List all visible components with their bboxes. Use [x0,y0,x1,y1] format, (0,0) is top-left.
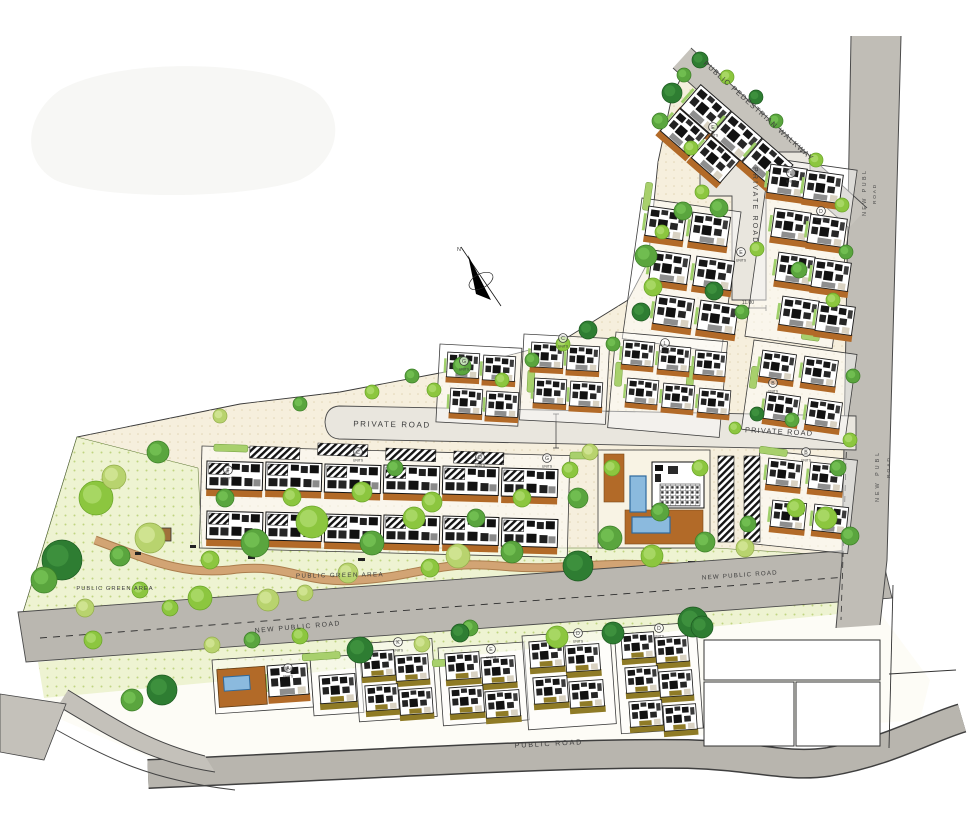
unit-marker-caption: UNITS [223,477,234,481]
tree-icon [582,444,598,460]
tree-icon [787,499,805,517]
tree-icon [188,586,212,610]
pool-building [217,666,268,707]
villa-block [482,391,520,423]
tree-icon [162,600,178,616]
tree-icon [655,225,669,239]
villa-block [444,652,482,687]
tree-icon [846,369,860,383]
villa-block [658,383,696,416]
tree-icon [84,631,102,649]
tree-icon [216,489,234,507]
villa-block [206,461,263,497]
tree-icon [652,113,668,129]
dimension-label: 11.00 [742,300,754,306]
unit-marker-caption: UNITS [542,465,553,469]
villa-block [628,700,665,733]
hedge [214,444,248,452]
unit-marker-letter: K [396,640,400,646]
tree-icon [403,507,425,529]
unit-marker-letter: D [576,631,580,637]
tree-icon [297,585,313,601]
tree-icon [513,489,531,507]
unit-marker-caption: UNITS [801,459,812,463]
tree-icon [695,185,709,199]
tree-icon [841,527,859,545]
villa-block [442,466,499,502]
tree-icon [387,460,403,476]
tree-icon [674,202,692,220]
tree-icon [360,531,384,555]
tree-icon [562,462,578,478]
unit-marker-letter: A [286,666,290,672]
tree-icon [830,460,846,476]
tree-icon [563,551,593,581]
tree-icon [546,626,568,648]
unit-marker-caption: UNITS [654,635,665,639]
tree-icon [684,141,698,155]
unit-marker-caption: UNITS [768,390,779,394]
tree-icon [102,465,126,489]
unit-marker-letter: B [771,381,775,387]
tree-icon [641,545,663,567]
tree-icon [729,422,741,434]
villa-block [532,676,570,711]
tree-icon [76,599,94,617]
villa-block [620,632,657,665]
unit-marker-caption: UNITS [459,368,470,372]
pergola-grid [660,484,700,506]
villa-block [762,458,803,494]
tree-icon [815,507,837,529]
tree-icon [414,636,430,652]
north-arrow-icon: N [457,247,501,306]
unit-marker-caption: UNITS [573,640,584,644]
unit-marker-caption: UNITS [786,180,797,184]
unit-marker-letter: F [226,468,229,474]
tree-icon [241,529,269,557]
unit-marker-letter: D [657,626,661,632]
new-publ-road-vertical-word1-a: NEW PUBL [862,169,868,216]
tree-icon [692,460,708,476]
tree-icon [835,198,849,212]
unit-marker-letter: E [711,125,715,131]
tree-icon [651,503,669,521]
tree-icon [365,385,379,399]
tree-icon [283,488,301,506]
unit-marker-letter: G [462,359,466,365]
unit-marker-caption: UNITS [708,134,719,138]
tree-icon [110,546,130,566]
unit-marker-letter: L [664,341,667,347]
site-plan-canvas: EUNITSLUNITSDUNITSEUNITSBUNITSGUNITSCUNI… [0,0,970,816]
tree-icon [736,539,754,557]
tree-icon [405,369,419,383]
tree-icon [735,305,749,319]
tree-icon [147,441,169,463]
swimming-pool-vertical [630,476,646,512]
watermark-blob [31,66,335,195]
unit-marker-letter: D [819,209,823,215]
villa-block [448,686,486,721]
unit-marker-letter: C [561,336,565,342]
tree-icon [644,278,662,296]
unit-marker-caption: UNITS [660,350,671,354]
new-publ-road-vertical-word1-b: NEW PUBL [875,450,881,502]
site-plan-svg: EUNITSLUNITSDUNITSEUNITSBUNITSGUNITSCUNI… [0,0,970,816]
tree-icon [347,637,373,663]
tree-icon [427,383,441,397]
tree-icon [257,589,279,611]
new-publ-road-vertical-word2-a: ROAD [872,183,878,204]
villa-block [566,381,604,413]
villa-block [624,666,661,699]
villa-block [563,345,601,377]
tree-icon [121,689,143,711]
villa-block [694,388,732,421]
villa-block [654,636,691,669]
tree-icon [31,567,57,593]
tree-icon [293,397,307,411]
tree-icon [296,506,328,538]
villa-block [398,688,435,721]
tree-icon [839,245,853,259]
tree-icon [710,199,728,217]
villa-block [690,350,728,383]
tree-icon [791,262,807,278]
parking-hatch [386,448,436,462]
tree-icon [604,460,620,476]
hedge [527,370,535,392]
tree-icon [213,409,227,423]
unit-marker-letter: C [356,450,360,456]
tree-icon [632,303,650,321]
swimming-pool-small [223,675,250,691]
tree-icon [843,433,857,447]
tree-icon [495,373,509,387]
tree-icon [826,293,840,307]
unit-marker-letter: B [804,450,808,456]
private-road-label-vertical: PRIVATE ROAD [751,167,758,244]
villa-block [364,684,401,717]
tree-icon [598,526,622,550]
private-road-label-mid: PRIVATE ROAD [353,419,431,429]
villa-block [622,378,660,411]
villa-block [318,673,358,710]
unit-marker-letter: L [790,171,793,177]
tree-icon [135,523,165,553]
tree-icon [451,624,469,642]
unit-marker-letter: G [545,456,549,462]
tree-icon [525,353,539,367]
tree-icon [606,337,620,351]
tree-icon [147,675,177,705]
villa-block [480,656,518,691]
unit-marker-caption: UNITS [353,459,364,463]
tree-icon [201,551,219,569]
tree-icon [568,488,588,508]
unit-marker-caption: UNITS [816,218,827,222]
villa-block [530,378,568,410]
unit-marker-caption: UNITS [736,259,747,263]
unit-marker-caption: UNITS [486,656,497,660]
unit-marker-caption: UNITS [283,675,294,679]
tree-icon [740,516,756,532]
tree-icon [635,245,657,267]
tree-icon [602,622,624,644]
villa-block [658,670,695,703]
parking-hatch [718,456,734,542]
tree-icon [695,532,715,552]
tree-icon [204,637,220,653]
tree-icon [677,68,691,82]
tree-icon [579,321,597,339]
villa-block [618,340,656,373]
unit-marker-caption: UNITS [393,649,404,653]
tree-icon [662,83,682,103]
tree-icon [422,492,442,512]
tree-icon [352,482,372,502]
villa-block [394,654,431,687]
tree-icon [446,544,470,568]
villa-block [484,690,522,725]
villa-block [564,644,602,679]
tree-icon [421,559,439,577]
new-publ-road-vertical-word2-b: ROAD [886,456,892,478]
villa-block [662,704,699,737]
tree-icon [691,616,713,638]
unit-marker-letter: E [739,250,743,256]
villa-block [446,388,484,420]
tree-icon [785,413,799,427]
unit-marker-caption: UNITS [558,345,569,349]
parking-hatch [250,446,300,460]
unit-marker-letter: D [478,455,482,461]
tree-icon [705,282,723,300]
unit-marker-letter: E [489,647,493,653]
unit-marker-caption: UNITS [475,464,486,468]
tree-icon [467,509,485,527]
north-letter: N [457,247,461,253]
villa-block [568,680,606,715]
tree-icon [501,541,523,563]
public-green-area-label-left: PUBLIC GREEN AREA [76,586,153,592]
tree-icon [750,407,764,421]
